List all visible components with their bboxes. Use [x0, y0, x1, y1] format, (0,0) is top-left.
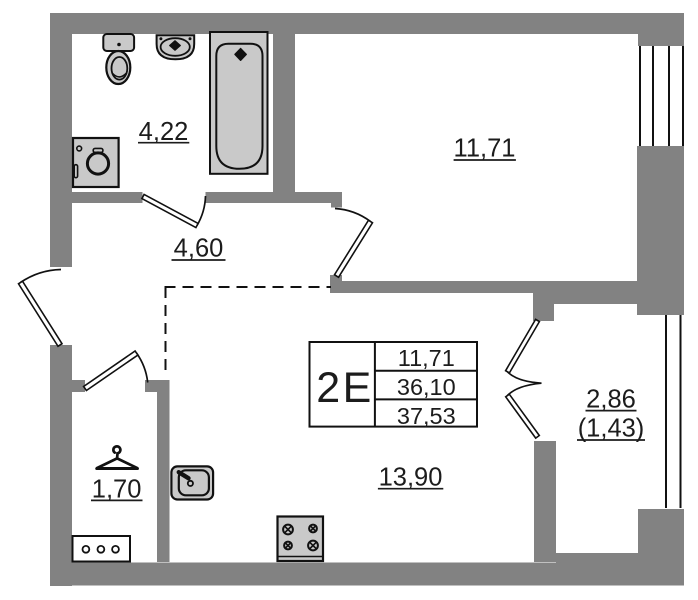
svg-text:11,71: 11,71: [398, 345, 455, 371]
svg-text:2,86: 2,86: [586, 385, 636, 413]
svg-text:2E: 2E: [316, 364, 374, 412]
svg-text:(1,43): (1,43): [578, 415, 645, 443]
svg-text:36,10: 36,10: [397, 374, 456, 400]
svg-text:4,60: 4,60: [174, 235, 224, 263]
svg-text:13,90: 13,90: [379, 464, 443, 492]
svg-text:4,22: 4,22: [139, 118, 189, 146]
svg-text:37,53: 37,53: [397, 403, 456, 429]
svg-text:11,71: 11,71: [454, 135, 516, 163]
svg-text:1,70: 1,70: [92, 475, 142, 503]
